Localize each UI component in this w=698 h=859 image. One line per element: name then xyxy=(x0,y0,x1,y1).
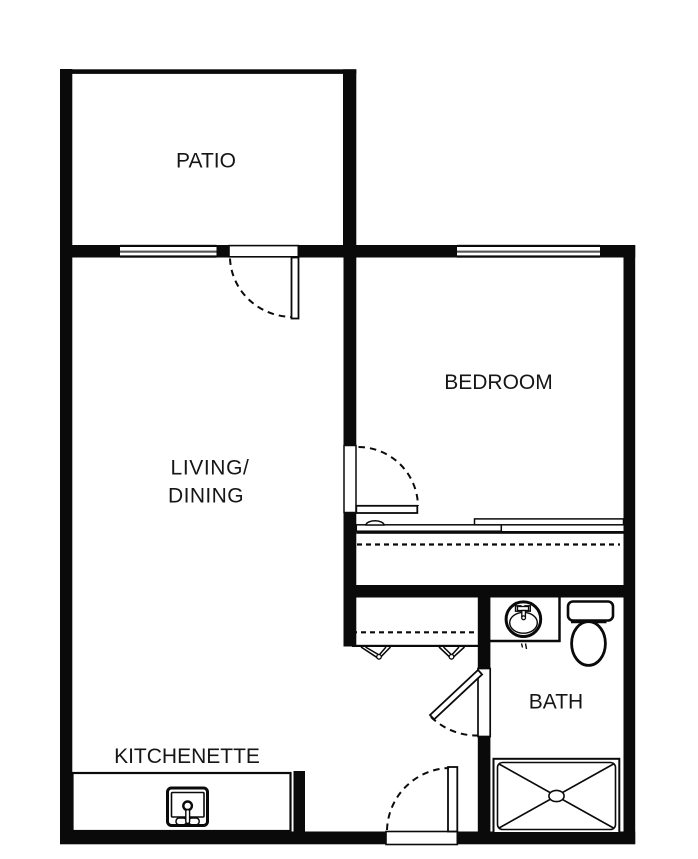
svg-text:KITCHENETTE: KITCHENETTE xyxy=(114,745,260,768)
svg-text:BATH: BATH xyxy=(529,691,583,714)
svg-text:BEDROOM: BEDROOM xyxy=(444,371,553,394)
svg-text:DINING: DINING xyxy=(168,485,244,508)
svg-text:LIVING/: LIVING/ xyxy=(171,457,250,480)
svg-text:PATIO: PATIO xyxy=(176,150,236,173)
